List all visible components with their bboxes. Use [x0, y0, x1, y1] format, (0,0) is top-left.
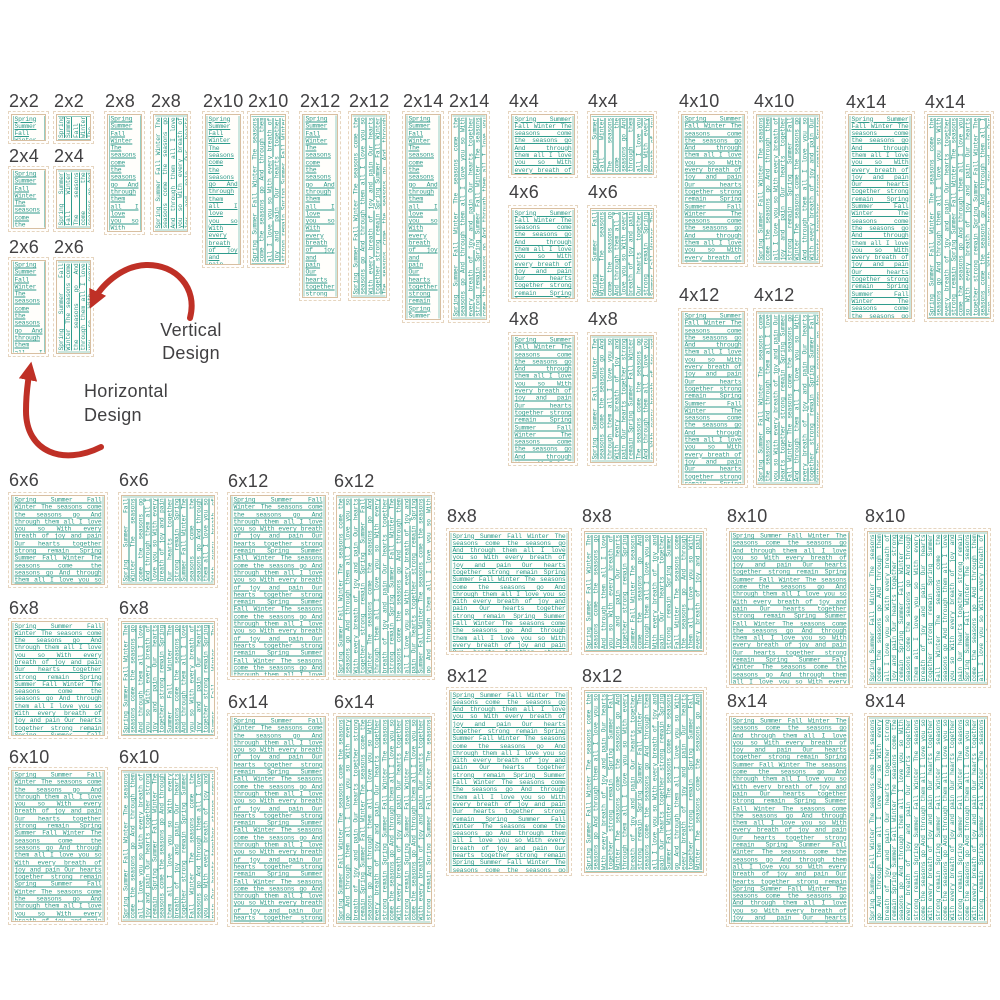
vertical-design-label: Vertical Design	[148, 319, 234, 365]
stitch-text: Spring Summer Fall Winter The seasons co…	[592, 116, 653, 174]
size-label-6x8-horizontal: 6x8	[9, 598, 39, 618]
stitch-text: Spring Summer Fall Winter The seasons co…	[338, 718, 431, 923]
stitch-text: Spring Summer Fall Winter The seasons co…	[586, 533, 703, 651]
design-preview-6x14-vertical: Spring Summer Fall Winter The seasons co…	[333, 713, 435, 927]
hoop-frame: Spring Summer Fall Winter The seasons co…	[729, 716, 850, 924]
stitch-text: Spring Summer Fall Winter The seasons co…	[850, 116, 911, 318]
stitch-text: Spring Summer Fall Winter The seasons co…	[13, 116, 45, 140]
design-preview-6x10-horizontal: Spring Summer Fall Winter The seasons co…	[8, 767, 108, 925]
design-preview-6x6-horizontal: Spring Summer Fall Winter The seasons co…	[8, 492, 108, 588]
stitch-text: Spring Summer Fall Winter The seasons co…	[451, 533, 568, 651]
stitch-text: Spring Summer Fall Winter The seasons co…	[252, 116, 285, 264]
design-preview-4x6-vertical: Spring Summer Fall Winter The seasons co…	[587, 205, 657, 302]
stitch-text: Spring Summer Fall Winter The seasons co…	[758, 313, 819, 484]
design-preview-4x10-horizontal: Spring Summer Fall Winter The seasons co…	[678, 111, 748, 267]
stitch-text: Spring Summer Fall Winter The seasons co…	[207, 116, 240, 264]
design-preview-6x10-vertical: Spring Summer Fall Winter The seasons co…	[118, 767, 218, 925]
hoop-frame: Spring Summer Fall Winter The seasons co…	[590, 114, 654, 175]
size-label-4x6-vertical: 4x6	[588, 182, 618, 202]
design-preview-4x6-horizontal: Spring Summer Fall Winter The seasons co…	[508, 205, 578, 302]
hoop-frame: Spring Summer Fall Winter The seasons co…	[336, 495, 432, 677]
hoop-frame: Spring Summer Fall Winter The seasons co…	[230, 495, 326, 677]
stitch-text: Spring Summer Fall Winter The seasons co…	[123, 623, 214, 735]
hoop-frame: Spring Summer Fall Winter The seasons co…	[681, 311, 745, 485]
design-preview-4x14-vertical: Spring Summer Fall Winter The seasons co…	[924, 111, 994, 322]
hoop-frame: Spring Summer Fall Winter The seasons co…	[449, 531, 569, 652]
hoop-frame: Spring Summer Fall Winter The seasons co…	[11, 114, 46, 141]
design-preview-6x8-vertical: Spring Summer Fall Winter The seasons co…	[118, 618, 218, 739]
size-label-6x6-horizontal: 6x6	[9, 470, 39, 490]
design-preview-4x10-vertical: Spring Summer Fall Winter The seasons co…	[753, 111, 823, 267]
stitch-text: Spring Summer Fall Winter The seasons co…	[13, 262, 45, 353]
hoop-frame: Spring Summer Fall Winter The seasons co…	[848, 114, 912, 319]
hoop-frame: Spring Summer Fall Winter The seasons co…	[11, 169, 46, 229]
hoop-frame: Spring Summer Fall Winter The seasons co…	[729, 531, 850, 685]
design-preview-4x8-vertical: Spring Summer Fall Winter The seasons co…	[587, 332, 657, 466]
size-label-4x8-horizontal: 4x8	[509, 309, 539, 329]
stitch-text: Spring Summer Fall Winter The seasons co…	[731, 533, 849, 684]
size-label-2x10-vertical: 2x10	[248, 91, 289, 111]
hoop-frame: Spring Summer Fall Winter The seasons co…	[121, 770, 215, 922]
stitch-text: Spring Summer Fall Winter The seasons co…	[586, 692, 703, 872]
size-label-8x8-horizontal: 8x8	[447, 506, 477, 526]
size-label-4x12-horizontal: 4x12	[679, 285, 720, 305]
stitch-text: Spring Summer Fall Winter The seasons co…	[513, 116, 574, 174]
design-preview-4x12-vertical: Spring Summer Fall Winter The seasons co…	[753, 308, 823, 488]
size-label-2x8-horizontal: 2x8	[105, 91, 135, 111]
design-preview-2x2-horizontal: Spring Summer Fall Winter The seasons co…	[8, 111, 49, 144]
stitch-text: Spring Summer Fall Winter The seasons co…	[13, 772, 104, 921]
design-preview-2x6-horizontal: Spring Summer Fall Winter The seasons co…	[8, 257, 49, 357]
hoop-frame: Spring Summer Fall Winter The seasons co…	[11, 621, 105, 736]
hoop-frame: Spring Summer Fall Winter The seasons co…	[230, 716, 326, 924]
hoop-frame: Spring Summer Fall Winter The seasons co…	[756, 114, 820, 264]
hoop-frame: Spring Summer Fall Winter The seasons co…	[250, 114, 286, 265]
hoop-frame: Spring Summer Fall Winter The seasons co…	[302, 114, 338, 298]
size-label-8x12-vertical: 8x12	[582, 666, 623, 686]
stitch-text: Spring Summer Fall Winter The seasons co…	[869, 718, 987, 923]
stitch-text: Spring Summer Fall Winter The seasons co…	[155, 116, 187, 231]
design-preview-4x4-horizontal: Spring Summer Fall Winter The seasons co…	[508, 111, 578, 178]
size-label-6x14-horizontal: 6x14	[228, 692, 269, 712]
stitch-text: Spring Summer Fall Winter The seasons co…	[109, 116, 141, 231]
size-label-6x6-vertical: 6x6	[119, 470, 149, 490]
hoop-frame: Spring Summer Fall Winter The seasons co…	[590, 335, 654, 463]
stitch-text: Spring Summer Fall Winter The seasons co…	[592, 337, 653, 462]
size-label-2x8-vertical: 2x8	[151, 91, 181, 111]
vertical-design-arrow	[93, 265, 192, 318]
design-preview-8x8-vertical: Spring Summer Fall Winter The seasons co…	[581, 528, 707, 655]
size-label-8x14-vertical: 8x14	[865, 691, 906, 711]
size-label-6x8-vertical: 6x8	[119, 598, 149, 618]
hoop-frame: Spring Summer Fall Winter The seasons co…	[11, 495, 105, 585]
stitch-text: Spring Summer Fall Winter The seasons co…	[338, 497, 431, 676]
hoop-frame: Spring Summer Fall Winter The seasons co…	[511, 335, 575, 463]
size-label-2x4-horizontal: 2x4	[9, 146, 39, 166]
design-preview-6x14-horizontal: Spring Summer Fall Winter The seasons co…	[227, 713, 329, 927]
hoop-frame: Spring Summer Fall Winter The seasons co…	[449, 690, 569, 873]
design-preview-8x10-vertical: Spring Summer Fall Winter The seasons co…	[864, 528, 991, 688]
hoop-frame: Spring Summer Fall Winter The seasons co…	[121, 621, 215, 736]
stitch-text: Spring Summer Fall Winter The seasons co…	[869, 533, 987, 684]
design-preview-2x6-vertical: Spring Summer Fall Winter The seasons co…	[53, 257, 94, 357]
stitch-text: Spring Summer Fall Winter The seasons co…	[123, 497, 214, 584]
size-label-4x10-horizontal: 4x10	[679, 91, 720, 111]
stitch-text: Spring Summer Fall Winter The seasons co…	[683, 116, 744, 263]
hoop-frame: Spring Summer Fall Winter The seasons co…	[451, 114, 487, 320]
size-label-4x8-vertical: 4x8	[588, 309, 618, 329]
hoop-frame: Spring Summer Fall Winter The seasons co…	[205, 114, 241, 265]
size-label-4x6-horizontal: 4x6	[509, 182, 539, 202]
design-preview-6x12-vertical: Spring Summer Fall Winter The seasons co…	[333, 492, 435, 680]
horizontal-design-label: Horizontal Design	[84, 379, 198, 427]
design-preview-8x12-vertical: Spring Summer Fall Winter The seasons co…	[581, 687, 707, 876]
size-label-2x6-vertical: 2x6	[54, 237, 84, 257]
hoop-frame: Spring Summer Fall Winter The seasons co…	[336, 716, 432, 924]
hoop-frame: Spring Summer Fall Winter The seasons co…	[867, 531, 988, 685]
design-preview-6x12-horizontal: Spring Summer Fall Winter The seasons co…	[227, 492, 329, 680]
hoop-frame: Spring Summer Fall Winter The seasons co…	[351, 114, 387, 298]
size-label-2x2-horizontal: 2x2	[9, 91, 39, 111]
size-label-8x14-horizontal: 8x14	[727, 691, 768, 711]
stitch-text: Spring Summer Fall Winter The seasons co…	[58, 171, 90, 228]
design-preview-8x12-horizontal: Spring Summer Fall Winter The seasons co…	[446, 687, 572, 876]
design-preview-2x10-vertical: Spring Summer Fall Winter The seasons co…	[247, 111, 289, 268]
design-preview-8x8-horizontal: Spring Summer Fall Winter The seasons co…	[446, 528, 572, 655]
hoop-frame: Spring Summer Fall Winter The seasons co…	[121, 495, 215, 585]
hoop-frame: Spring Summer Fall Winter The seasons co…	[153, 114, 188, 232]
design-preview-4x8-horizontal: Spring Summer Fall Winter The seasons co…	[508, 332, 578, 466]
hoop-frame: Spring Summer Fall Winter The seasons co…	[584, 531, 704, 652]
design-preview-4x4-vertical: Spring Summer Fall Winter The seasons co…	[587, 111, 657, 178]
size-label-6x12-horizontal: 6x12	[228, 471, 269, 491]
design-preview-2x2-vertical: Spring Summer Fall Winter The seasons co…	[53, 111, 94, 144]
design-preview-2x12-vertical: Spring Summer Fall Winter The seasons co…	[348, 111, 390, 301]
hoop-frame: Spring Summer Fall Winter The seasons co…	[107, 114, 142, 232]
design-preview-8x10-horizontal: Spring Summer Fall Winter The seasons co…	[726, 528, 853, 688]
stitch-text: Spring Summer Fall Winter The seasons co…	[13, 497, 104, 584]
design-preview-2x14-horizontal: Spring Summer Fall Winter The seasons co…	[402, 111, 444, 323]
hoop-frame: Spring Summer Fall Winter The seasons co…	[511, 208, 575, 299]
stitch-text: Spring Summer Fall Winter The seasons co…	[58, 116, 90, 140]
stitch-text: Spring Summer Fall Winter The seasons co…	[123, 772, 214, 921]
stitch-text: Spring Summer Fall Winter The seasons co…	[451, 692, 568, 872]
size-label-8x12-horizontal: 8x12	[447, 666, 488, 686]
hoop-frame: Spring Summer Fall Winter The seasons co…	[511, 114, 575, 175]
size-label-4x4-horizontal: 4x4	[509, 91, 539, 111]
stitch-text: Spring Summer Fall Winter The seasons co…	[13, 171, 45, 228]
size-label-8x8-vertical: 8x8	[582, 506, 612, 526]
size-label-6x10-vertical: 6x10	[119, 747, 160, 767]
stitch-text: Spring Summer Fall Winter The seasons co…	[13, 623, 104, 735]
size-label-2x6-horizontal: 2x6	[9, 237, 39, 257]
stitch-text: Spring Summer Fall Winter The seasons co…	[232, 497, 325, 676]
size-label-2x14-vertical: 2x14	[449, 91, 490, 111]
design-preview-4x14-horizontal: Spring Summer Fall Winter The seasons co…	[845, 111, 915, 322]
hoop-frame: Spring Summer Fall Winter The seasons co…	[927, 114, 991, 319]
hoop-frame: Spring Summer Fall Winter The seasons co…	[681, 114, 745, 264]
hoop-frame: Spring Summer Fall Winter The seasons co…	[56, 260, 91, 354]
size-label-2x10-horizontal: 2x10	[203, 91, 244, 111]
size-label-4x14-horizontal: 4x14	[846, 92, 887, 112]
design-preview-2x4-horizontal: Spring Summer Fall Winter The seasons co…	[8, 166, 49, 232]
stitch-text: Spring Summer Fall Winter The seasons co…	[929, 116, 990, 318]
size-label-8x10-vertical: 8x10	[865, 506, 906, 526]
design-preview-8x14-vertical: Spring Summer Fall Winter The seasons co…	[864, 713, 991, 927]
stitch-text: Spring Summer Fall Winter The seasons co…	[513, 210, 574, 298]
stitch-text: Spring Summer Fall Winter The seasons co…	[592, 210, 653, 298]
size-label-2x12-vertical: 2x12	[349, 91, 390, 111]
stitch-text: Spring Summer Fall Winter The seasons co…	[453, 116, 486, 319]
design-preview-2x4-vertical: Spring Summer Fall Winter The seasons co…	[53, 166, 94, 232]
stitch-text: Spring Summer Fall Winter The seasons co…	[58, 262, 90, 353]
stitch-text: Spring Summer Fall Winter The seasons co…	[304, 116, 337, 297]
stitch-text: Spring Summer Fall Winter The seasons co…	[407, 116, 440, 319]
size-label-4x12-vertical: 4x12	[754, 285, 795, 305]
size-label-6x12-vertical: 6x12	[334, 471, 375, 491]
design-preview-6x6-vertical: Spring Summer Fall Winter The seasons co…	[118, 492, 218, 588]
design-preview-2x8-vertical: Spring Summer Fall Winter The seasons co…	[150, 111, 191, 235]
design-preview-6x8-horizontal: Spring Summer Fall Winter The seasons co…	[8, 618, 108, 739]
hoop-frame: Spring Summer Fall Winter The seasons co…	[756, 311, 820, 485]
design-preview-2x8-horizontal: Spring Summer Fall Winter The seasons co…	[104, 111, 145, 235]
design-preview-2x14-vertical: Spring Summer Fall Winter The seasons co…	[448, 111, 490, 323]
hoop-frame: Spring Summer Fall Winter The seasons co…	[11, 260, 46, 354]
size-label-4x14-vertical: 4x14	[925, 92, 966, 112]
size-label-2x12-horizontal: 2x12	[300, 91, 341, 111]
hoop-frame: Spring Summer Fall Winter The seasons co…	[584, 690, 704, 873]
size-label-4x4-vertical: 4x4	[588, 91, 618, 111]
hoop-frame: Spring Summer Fall Winter The seasons co…	[56, 114, 91, 141]
design-size-chart: 2x2Spring Summer Fall Winter The seasons…	[0, 0, 1000, 1000]
design-preview-8x14-horizontal: Spring Summer Fall Winter The seasons co…	[726, 713, 853, 927]
size-label-6x10-horizontal: 6x10	[9, 747, 50, 767]
stitch-text: Spring Summer Fall Winter The seasons co…	[513, 337, 574, 462]
size-label-6x14-vertical: 6x14	[334, 692, 375, 712]
stitch-text: Spring Summer Fall Winter The seasons co…	[353, 116, 386, 297]
hoop-frame: Spring Summer Fall Winter The seasons co…	[11, 770, 105, 922]
size-label-2x4-vertical: 2x4	[54, 146, 84, 166]
size-label-4x10-vertical: 4x10	[754, 91, 795, 111]
hoop-frame: Spring Summer Fall Winter The seasons co…	[590, 208, 654, 299]
stitch-text: Spring Summer Fall Winter The seasons co…	[232, 718, 325, 923]
design-preview-4x12-horizontal: Spring Summer Fall Winter The seasons co…	[678, 308, 748, 488]
hoop-frame: Spring Summer Fall Winter The seasons co…	[56, 169, 91, 229]
size-label-2x14-horizontal: 2x14	[403, 91, 444, 111]
size-label-2x2-vertical: 2x2	[54, 91, 84, 111]
design-preview-2x12-horizontal: Spring Summer Fall Winter The seasons co…	[299, 111, 341, 301]
hoop-frame: Spring Summer Fall Winter The seasons co…	[405, 114, 441, 320]
design-preview-2x10-horizontal: Spring Summer Fall Winter The seasons co…	[202, 111, 244, 268]
stitch-text: Spring Summer Fall Winter The seasons co…	[758, 116, 819, 263]
hoop-frame: Spring Summer Fall Winter The seasons co…	[867, 716, 988, 924]
size-label-8x10-horizontal: 8x10	[727, 506, 768, 526]
stitch-text: Spring Summer Fall Winter The seasons co…	[731, 718, 849, 923]
stitch-text: Spring Summer Fall Winter The seasons co…	[683, 313, 744, 484]
